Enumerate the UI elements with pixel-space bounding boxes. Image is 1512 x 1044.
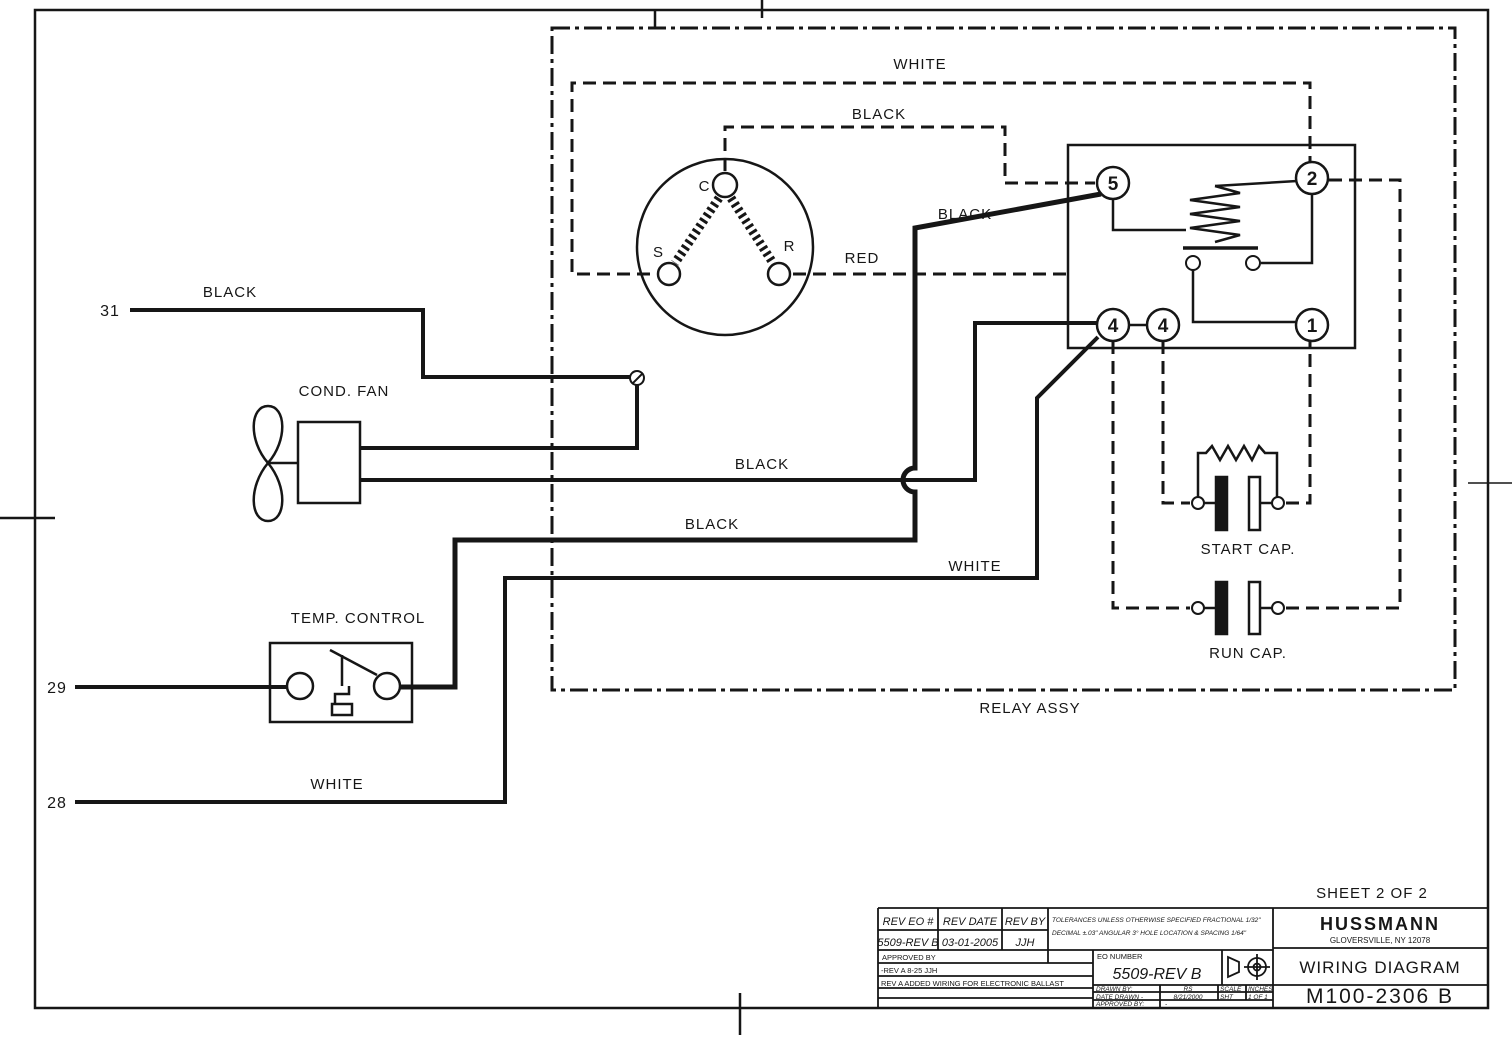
startcap-plate-left	[1216, 477, 1227, 530]
wire-runcap-left	[1113, 341, 1190, 608]
sheet-cell-value: 1 OF 1	[1248, 994, 1268, 1001]
wire-label-white-ctrl: WHITE	[948, 558, 1001, 575]
start-winding	[675, 198, 719, 263]
rev-eo-header: REV EO #	[883, 916, 935, 928]
relay-terminal-1-label: 1	[1307, 316, 1318, 337]
wire-fan-bottom-black	[360, 323, 1097, 480]
page-border	[0, 0, 1512, 1035]
cond-fan-motor	[254, 406, 360, 521]
motor-terminal-r	[768, 263, 790, 285]
relay-contact-left	[1186, 256, 1200, 270]
runcap-terminal-left	[1192, 602, 1204, 614]
start-capacitor	[1192, 446, 1284, 530]
wire-28-white	[75, 337, 1098, 802]
relay-contact-right	[1246, 256, 1260, 270]
relay-coil-lead	[1113, 199, 1186, 230]
wire-label-black-relay: BLACK	[938, 206, 992, 223]
rev-eo-value: 5509-REV B	[877, 937, 938, 949]
rev-note-2: REV A ADDED WIRING FOR ELECTRONIC BALLAS…	[881, 979, 1064, 988]
eo-number-value: 5509-REV B	[1113, 966, 1202, 983]
bleed-resistor	[1198, 446, 1277, 497]
relay-contact-lead-right	[1261, 194, 1312, 263]
temp-control-terminal-left	[287, 673, 313, 699]
drawn-by-label: DRAWN BY:	[1096, 986, 1133, 993]
temp-control-terminal-right	[374, 673, 400, 699]
sheet-cell-label: SHT	[1220, 994, 1234, 1001]
relay-terminal-5-label: 5	[1108, 174, 1119, 195]
start-cap-label: START CAP.	[1201, 541, 1296, 558]
wire-31-black	[130, 310, 630, 377]
run-capacitor	[1192, 582, 1284, 634]
connector-29-label: 29	[47, 680, 67, 697]
sheet-note: SHEET 2 OF 2	[1316, 885, 1428, 902]
relay-coil	[1190, 186, 1240, 242]
runcap-terminal-right	[1272, 602, 1284, 614]
relay-terminal-2-label: 2	[1307, 169, 1318, 190]
wire-junction	[630, 371, 644, 385]
border-rect	[35, 10, 1488, 1008]
wire-label-white-motor: WHITE	[893, 56, 946, 73]
motor-terminal-c	[713, 173, 737, 197]
wire-startcap-right	[1286, 341, 1310, 503]
motor-terminal-s	[658, 263, 680, 285]
relay-assy-label: RELAY ASSY	[979, 700, 1080, 717]
approved-row-label: APPROVED BY	[882, 953, 936, 962]
company-location: GLOVERSVILLE, NY 12078	[1330, 936, 1431, 945]
tolerance-line1: TOLERANCES UNLESS OTHERWISE SPECIFIED FR…	[1052, 917, 1261, 924]
drawn-by-value: RS	[1183, 986, 1193, 993]
wire-label-white-28: WHITE	[310, 776, 363, 793]
wire-fan-top	[360, 385, 637, 448]
cond-fan-label: COND. FAN	[299, 383, 390, 400]
fan-blade-top	[254, 406, 283, 463]
doc-number: M100-2306 B	[1306, 985, 1454, 1008]
tolerance-line2: DECIMAL ±.03" ANGULAR 3° HOLE LOCATION &…	[1052, 929, 1247, 937]
runcap-plate-right	[1249, 582, 1260, 634]
wire-runcap-right	[1286, 180, 1400, 608]
approved-by-label: APPROVED BY:	[1095, 1001, 1144, 1008]
title-block-text: REV EO # REV DATE REV BY 5509-REV B 03-0…	[877, 914, 1460, 1008]
rev-note-1: -REV A 8-25 JJH	[881, 966, 937, 975]
switch-arm	[330, 650, 377, 675]
scale-label: SCALE	[1220, 986, 1242, 993]
startcap-terminal-right	[1272, 497, 1284, 509]
relay-terminal-4b-label: 4	[1158, 316, 1169, 337]
fan-blade-bottom	[254, 463, 283, 521]
thermal-element-link	[335, 655, 349, 704]
wire-black-motor	[725, 127, 1095, 183]
rev-by-value: JJH	[1015, 937, 1035, 949]
rev-date-value: 03-01-2005	[942, 937, 999, 949]
temp-control-label: TEMP. CONTROL	[291, 610, 425, 627]
run-cap-label: RUN CAP.	[1209, 645, 1287, 662]
runcap-plate-left	[1216, 582, 1227, 634]
fan-motor-box	[298, 422, 360, 503]
relay-terminal-4a-label: 4	[1108, 316, 1119, 337]
relay-coil-top-lead	[1215, 181, 1297, 186]
wire-label-black-motor: BLACK	[852, 106, 906, 123]
company-logo: HUSSMANN	[1320, 914, 1440, 934]
date-drawn-value: 8/21/2000	[1174, 994, 1203, 1001]
projection-symbol	[1228, 954, 1270, 980]
doc-type: WIRING DIAGRAM	[1299, 958, 1460, 977]
wire-startcap-left	[1163, 341, 1190, 503]
wire-label-black-fan: BLACK	[735, 456, 789, 473]
connector-28-label: 28	[47, 795, 67, 812]
scale-value: INCHES	[1248, 986, 1273, 993]
motor-terminal-c-label: C	[699, 178, 710, 195]
wire-label-black-ctrl: BLACK	[685, 516, 739, 533]
run-winding	[731, 198, 773, 263]
connector-31-label: 31	[100, 303, 120, 320]
rev-date-header: REV DATE	[943, 916, 998, 928]
drawing-sheet: 31 29 28 BLACK COND. FAN TEMP. CONTROL W…	[0, 0, 1512, 1044]
thermal-element	[332, 704, 352, 715]
startcap-plate-right	[1249, 477, 1260, 530]
motor-terminal-s-label: S	[653, 244, 663, 261]
projection-cone-icon	[1228, 957, 1239, 977]
motor-terminal-r-label: R	[784, 238, 795, 255]
wire-label-red: RED	[845, 250, 880, 267]
eo-number-label: EO NUMBER	[1097, 952, 1143, 961]
startcap-terminal-left	[1192, 497, 1204, 509]
rev-by-header: REV BY	[1005, 916, 1046, 928]
temp-control-switch	[270, 643, 412, 722]
date-drawn-label: DATE DRAWN -	[1096, 994, 1144, 1001]
wire-label-black-31: BLACK	[203, 284, 257, 301]
relay-contact-lead-left	[1193, 270, 1296, 322]
